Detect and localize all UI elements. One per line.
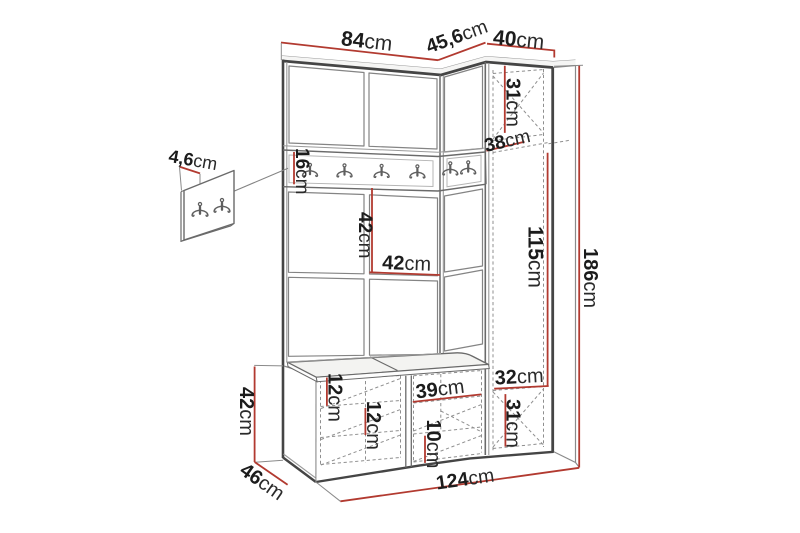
svg-text:12cm: 12cm <box>324 373 346 422</box>
svg-text:42cm: 42cm <box>382 252 432 276</box>
svg-text:42cm: 42cm <box>235 387 257 436</box>
svg-text:10cm: 10cm <box>422 420 444 469</box>
svg-text:186cm: 186cm <box>579 248 601 308</box>
svg-text:12cm: 12cm <box>362 401 384 450</box>
svg-text:31cm: 31cm <box>502 399 524 448</box>
svg-text:115cm: 115cm <box>524 226 547 288</box>
svg-text:42cm: 42cm <box>354 212 375 258</box>
svg-text:16cm: 16cm <box>291 148 312 194</box>
svg-text:32cm: 32cm <box>494 365 544 390</box>
svg-text:31cm: 31cm <box>502 78 524 127</box>
